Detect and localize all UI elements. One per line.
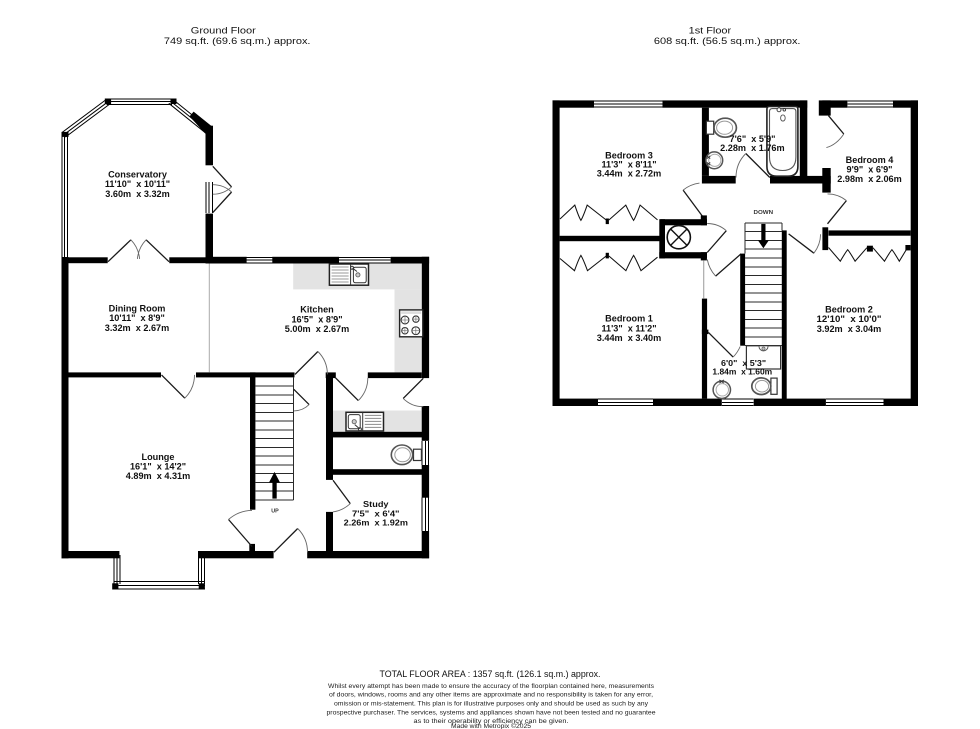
svg-text:Bedroom 1: Bedroom 1 — [605, 314, 653, 324]
svg-text:16'5" x 8'9": 16'5" x 8'9" — [291, 314, 342, 324]
svg-text:Kitchen: Kitchen — [300, 305, 334, 315]
svg-text:Bedroom 2: Bedroom 2 — [825, 304, 873, 314]
svg-text:4.89m x 4.31m: 4.89m x 4.31m — [126, 471, 190, 481]
svg-text:11'3" x 11'2": 11'3" x 11'2" — [601, 323, 656, 333]
svg-text:1.84m x 1.60m: 1.84m x 1.60m — [712, 368, 772, 377]
svg-text:DOWN: DOWN — [754, 210, 774, 216]
svg-text:10'11" x 8'9": 10'11" x 8'9" — [109, 313, 165, 323]
svg-text:Ground Floor: Ground Floor — [191, 24, 256, 35]
svg-text:3.44m x 2.72m: 3.44m x 2.72m — [597, 168, 661, 178]
svg-text:7'5" x 6'4": 7'5" x 6'4" — [352, 509, 400, 518]
svg-text:Lounge: Lounge — [142, 452, 175, 462]
svg-text:omission or mis-statement. Thi: omission or mis-statement. This plan is … — [334, 701, 649, 708]
svg-text:3.44m x 3.40m: 3.44m x 3.40m — [597, 333, 661, 343]
svg-text:3.60m x 3.32m: 3.60m x 3.32m — [105, 189, 169, 199]
svg-text:of doors, windows, rooms and a: of doors, windows, rooms and any other i… — [329, 692, 653, 699]
svg-text:3.32m x 2.67m: 3.32m x 2.67m — [105, 323, 169, 333]
svg-text:749 sq.ft. (69.6 sq.m.) approx: 749 sq.ft. (69.6 sq.m.) approx. — [164, 35, 311, 46]
svg-text:Dining Room: Dining Room — [109, 303, 166, 313]
svg-text:Whilst every attempt has been: Whilst every attempt has been made to en… — [328, 683, 655, 690]
svg-text:2.98m x 2.06m: 2.98m x 2.06m — [837, 174, 901, 184]
svg-text:11'10" x 10'11": 11'10" x 10'11" — [105, 179, 170, 189]
svg-text:prospective purchaser. The ser: prospective purchaser. The services, sys… — [327, 709, 656, 716]
svg-text:12'10" x 10'0": 12'10" x 10'0" — [817, 314, 882, 324]
svg-text:Conservatory: Conservatory — [108, 169, 168, 179]
svg-text:5.00m x 2.67m: 5.00m x 2.67m — [285, 324, 349, 334]
svg-text:UP: UP — [271, 508, 279, 514]
svg-text:1st Floor: 1st Floor — [689, 24, 732, 35]
svg-text:Made with Metropix ©2025: Made with Metropix ©2025 — [451, 722, 531, 729]
svg-text:2.28m x 1.76m: 2.28m x 1.76m — [720, 143, 784, 153]
svg-text:9'9" x 6'9": 9'9" x 6'9" — [847, 164, 893, 174]
svg-text:16'1" x 14'2": 16'1" x 14'2" — [130, 461, 186, 471]
svg-text:2.26m x 1.92m: 2.26m x 1.92m — [344, 519, 408, 528]
svg-text:TOTAL FLOOR AREA : 1357 sq.ft.: TOTAL FLOOR AREA : 1357 sq.ft. (126.1 sq… — [380, 669, 601, 680]
svg-text:Study: Study — [363, 500, 389, 509]
svg-text:3.92m x 3.04m: 3.92m x 3.04m — [817, 324, 881, 334]
svg-text:Bedroom 4: Bedroom 4 — [846, 155, 895, 165]
svg-text:608 sq.ft. (56.5 sq.m.) approx: 608 sq.ft. (56.5 sq.m.) approx. — [654, 35, 801, 46]
